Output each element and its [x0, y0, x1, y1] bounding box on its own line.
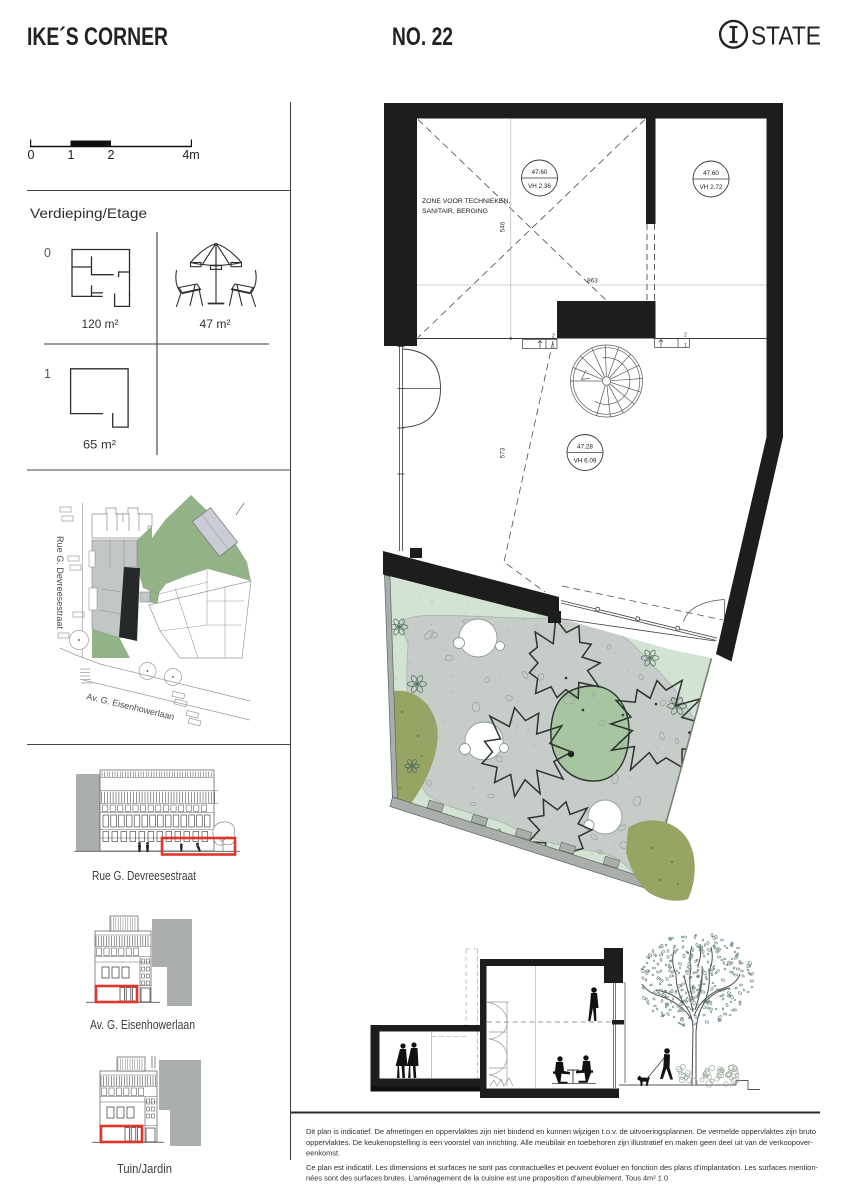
svg-text:47 m²: 47 m²: [200, 317, 231, 331]
svg-text:ZONE VOOR TECHNIEKEN,: ZONE VOOR TECHNIEKEN,: [422, 198, 510, 205]
svg-text:NO. 22: NO. 22: [392, 23, 453, 51]
svg-text:2: 2: [108, 148, 115, 162]
svg-text:Rue G. Devreesestraat: Rue G. Devreesestraat: [92, 868, 196, 883]
svg-text:0: 0: [28, 148, 35, 162]
svg-text:Verdieping/Etage: Verdieping/Etage: [30, 206, 147, 221]
svg-text:Ce plan est indicatif. Les dim: Ce plan est indicatif. Les dimensions et…: [306, 1163, 819, 1172]
svg-text:2: 2: [552, 334, 555, 340]
svg-text:IKE´S CORNER: IKE´S CORNER: [27, 23, 168, 51]
svg-text:120 m²: 120 m²: [82, 317, 119, 331]
svg-text:Tuin/Jardin: Tuin/Jardin: [117, 1161, 172, 1176]
svg-text:eenkomst.: eenkomst.: [306, 1149, 340, 1158]
svg-text:47.60: 47.60: [532, 169, 548, 176]
svg-text:VH 2.72: VH 2.72: [700, 184, 723, 191]
svg-text:1: 1: [552, 344, 555, 350]
svg-text:47.28: 47.28: [577, 444, 593, 451]
svg-text:0: 0: [44, 246, 51, 260]
svg-text:Av. G. Eisenhowerlaan: Av. G. Eisenhowerlaan: [90, 1017, 195, 1032]
svg-text:Rue G. Devreesestraat: Rue G. Devreesestraat: [55, 536, 65, 629]
svg-text:VH 6.09: VH 6.09: [574, 458, 597, 465]
svg-text:1: 1: [684, 343, 687, 349]
svg-text:oppervlaktes. De keukenopstell: oppervlaktes. De keukenopstelling is een…: [306, 1138, 814, 1147]
svg-text:546: 546: [500, 221, 507, 232]
svg-text:SANITAIR, BERGING: SANITAIR, BERGING: [422, 208, 488, 215]
svg-text:863: 863: [587, 278, 598, 285]
svg-text:Dit plan is indicatief. De afm: Dit plan is indicatief. De afmetingen en…: [306, 1127, 816, 1136]
svg-text:nées sont des surfaces brutes.: nées sont des surfaces brutes. L’aménage…: [306, 1174, 668, 1183]
svg-text:65 m²: 65 m²: [83, 438, 116, 452]
svg-text:573: 573: [500, 447, 507, 458]
svg-text:VH 2.36: VH 2.36: [528, 183, 551, 190]
svg-text:47.60: 47.60: [703, 170, 719, 177]
svg-text:STATE: STATE: [751, 21, 821, 51]
svg-text:2: 2: [684, 333, 687, 339]
svg-text:1: 1: [68, 148, 75, 162]
svg-text:1: 1: [44, 367, 51, 381]
svg-text:4m: 4m: [182, 148, 199, 162]
